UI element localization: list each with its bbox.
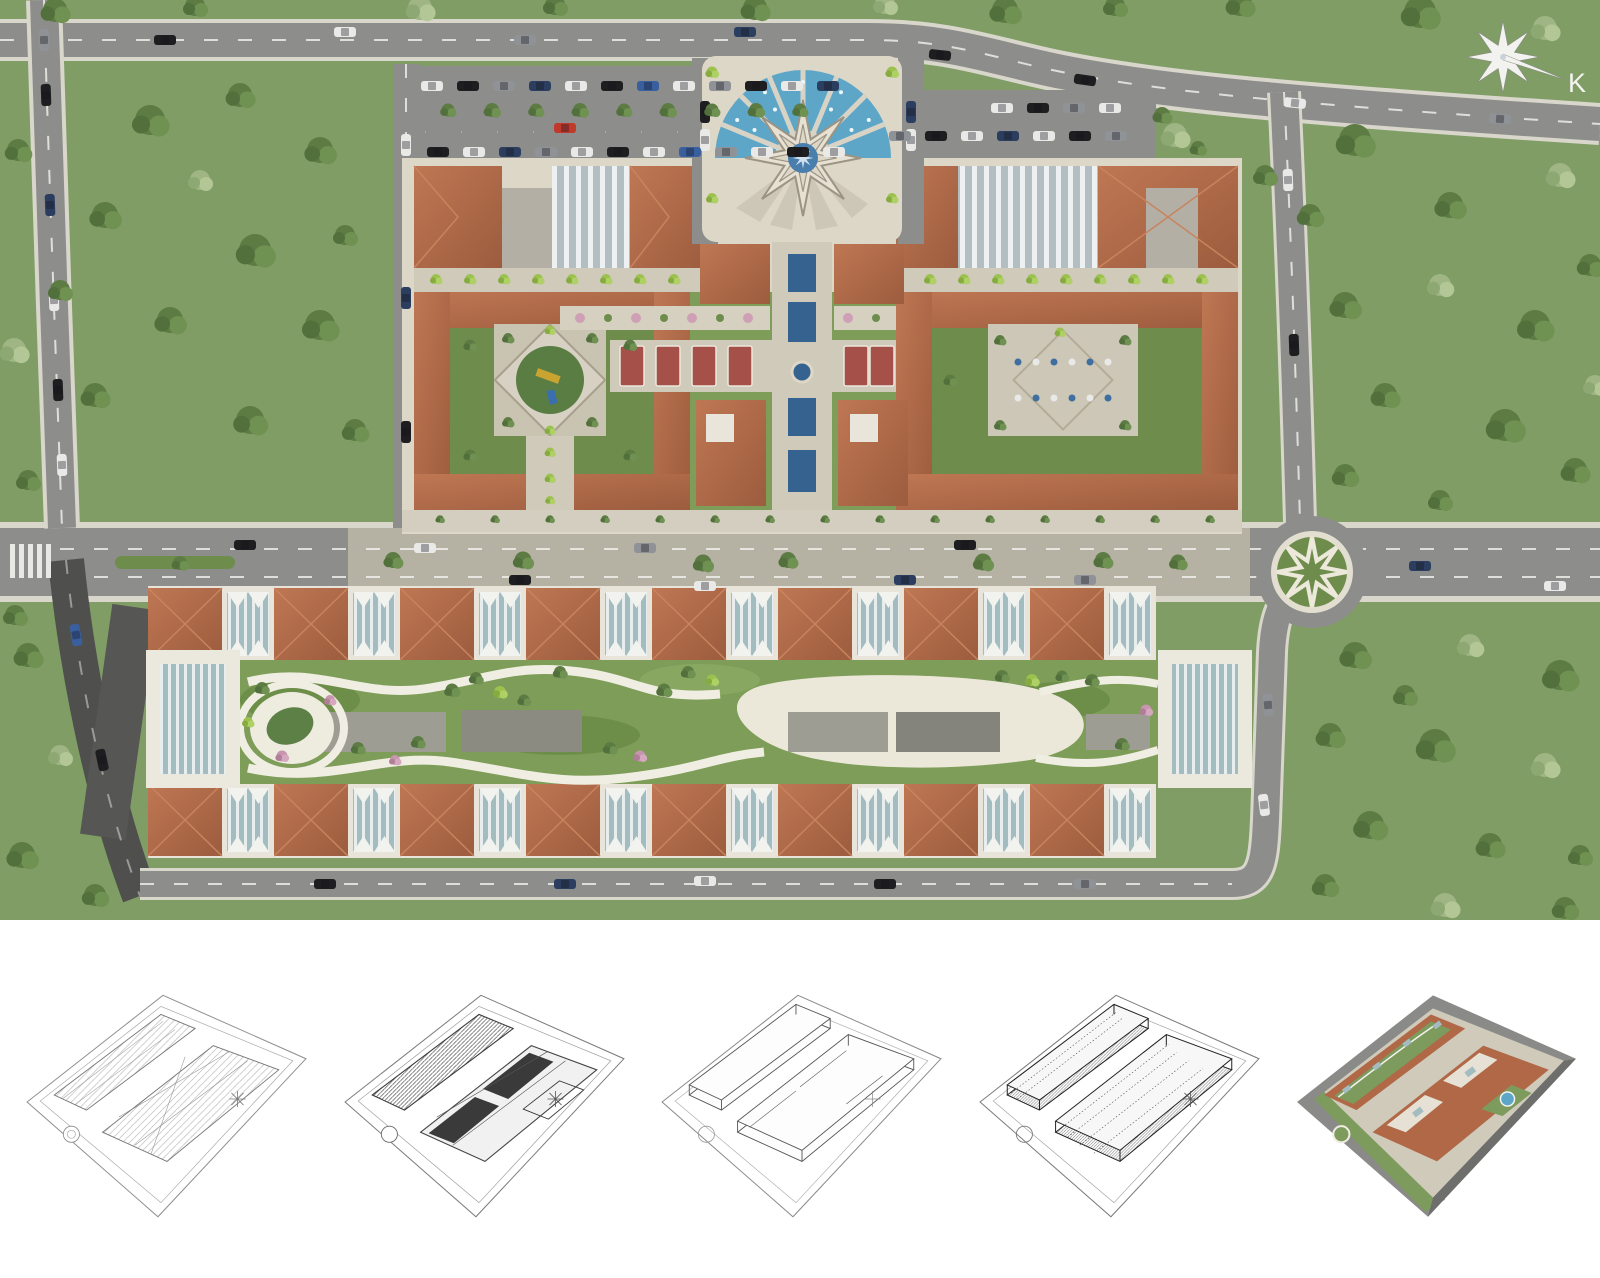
cafe-courtyard: [988, 324, 1138, 436]
round-fountain: [792, 362, 812, 382]
aerial-render: K: [0, 0, 1600, 920]
row-housing-district: [146, 586, 1252, 858]
stage-thumbnail-2: [332, 944, 634, 1254]
skylight-roof: [958, 166, 1098, 268]
skylight-roof: [552, 166, 630, 268]
linear-park: [238, 660, 1162, 784]
stage-thumbnail-3: [649, 944, 951, 1254]
axis-pools: [788, 254, 816, 492]
housing-row-north: [148, 586, 1156, 662]
promenade: [414, 268, 708, 292]
east-wing: [896, 292, 1238, 510]
roundabout: [1256, 516, 1368, 628]
housing-row-south: [148, 782, 1156, 858]
stage-thumbnail-4: [967, 944, 1269, 1254]
masterplan-board: K: [0, 0, 1600, 1278]
design-stages-strip: [0, 920, 1600, 1278]
aerial-render-svg: K: [0, 0, 1600, 920]
compass-north-label: K: [1568, 68, 1586, 98]
stage-thumbnail-1: [14, 944, 316, 1254]
red-car: [554, 123, 576, 133]
stage-thumbnail-5: [1284, 944, 1586, 1254]
